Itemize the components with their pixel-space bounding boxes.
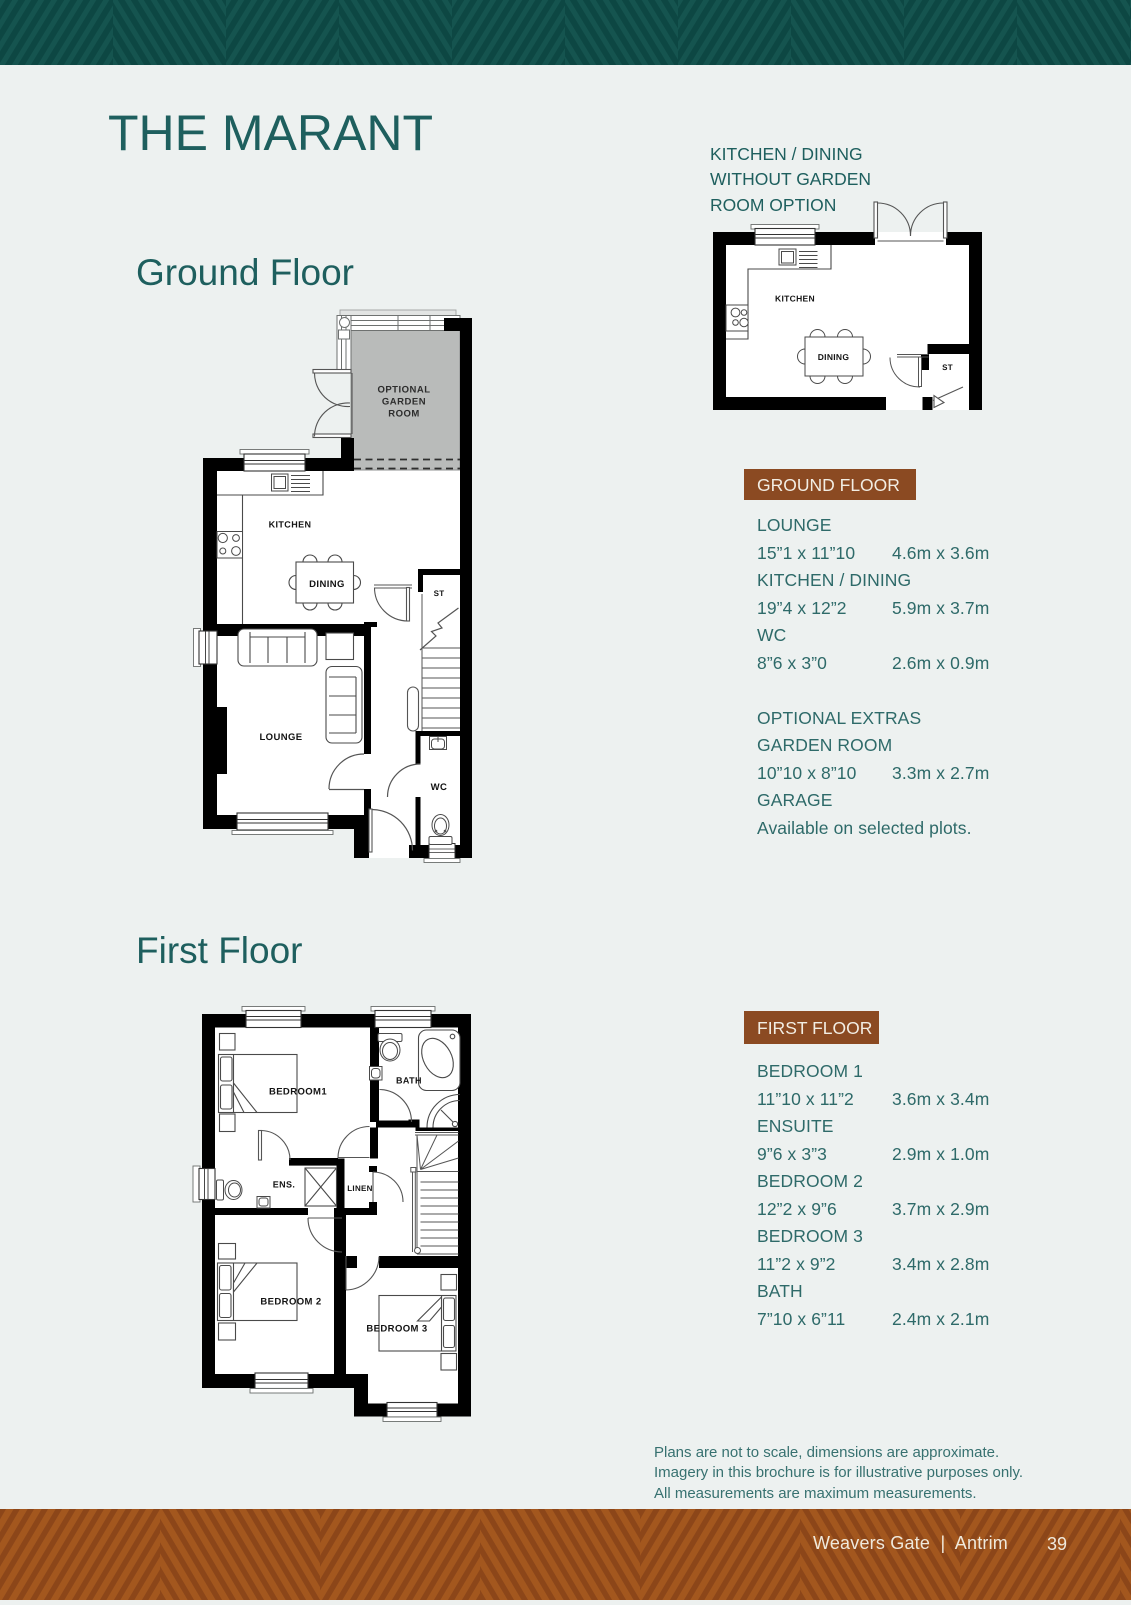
svg-text:WC: WC	[431, 782, 448, 793]
svg-text:OPTIONAL: OPTIONAL	[377, 384, 430, 395]
svg-text:LINEN: LINEN	[347, 1184, 373, 1193]
svg-text:DINING: DINING	[818, 352, 850, 362]
svg-text:BATH: BATH	[396, 1075, 422, 1085]
svg-text:ROOM: ROOM	[388, 408, 420, 419]
svg-text:BEDROOM 2: BEDROOM 2	[260, 1296, 321, 1307]
svg-text:GARDEN: GARDEN	[382, 396, 426, 407]
svg-text:ST: ST	[434, 589, 445, 598]
svg-text:DINING: DINING	[309, 579, 345, 590]
svg-text:ST: ST	[942, 363, 953, 372]
svg-text:LOUNGE: LOUNGE	[259, 732, 302, 743]
svg-text:KITCHEN: KITCHEN	[775, 293, 815, 303]
svg-text:ENS.: ENS.	[273, 1179, 296, 1189]
svg-text:KITCHEN: KITCHEN	[269, 519, 312, 529]
svg-text:BEDROOM 3: BEDROOM 3	[366, 1323, 427, 1334]
svg-text:BEDROOM1: BEDROOM1	[269, 1086, 327, 1097]
